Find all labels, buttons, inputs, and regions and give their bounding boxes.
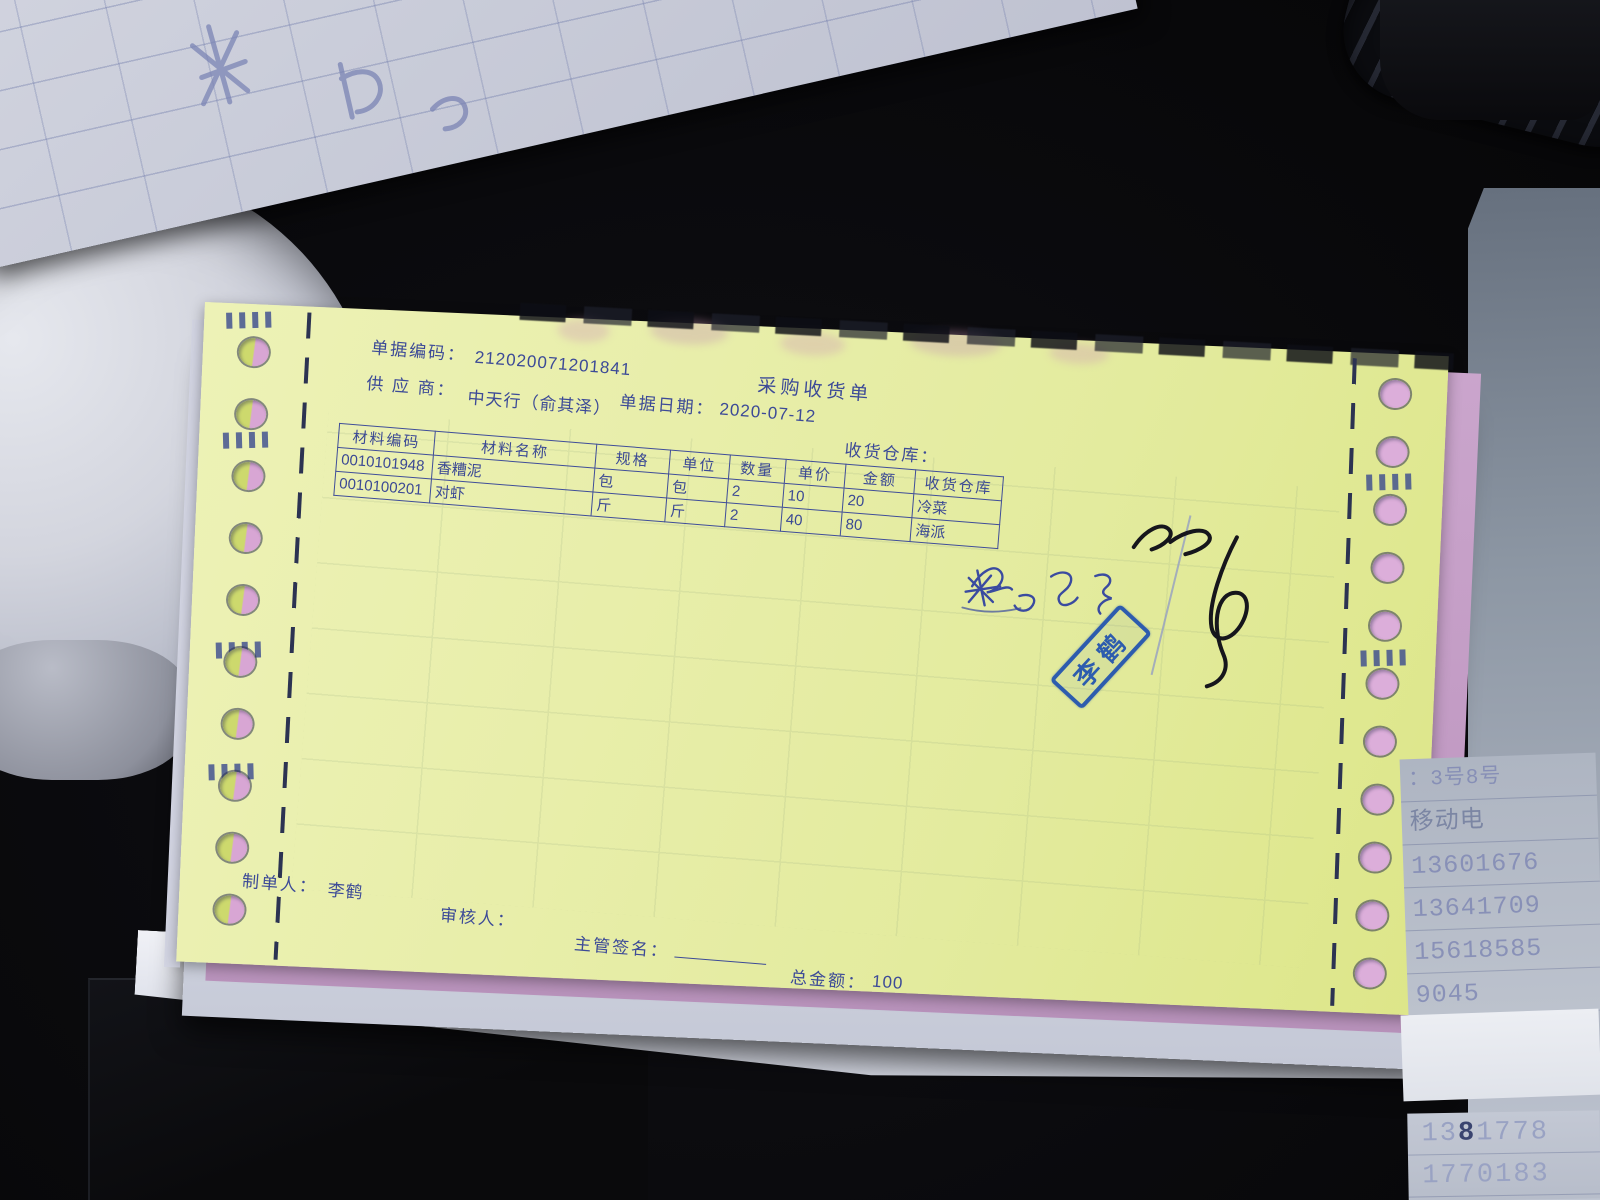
number-digit: 7: [1494, 1118, 1513, 1148]
printed-form-content: 单据编码： 212020071201841 采购收货单 单据日期： 2020-0…: [154, 300, 1448, 1058]
number-digit: 1: [1495, 1160, 1514, 1190]
number-digit: 8: [1513, 1160, 1532, 1190]
table-cell: 80: [840, 512, 912, 542]
table-cell: 斤: [591, 492, 667, 522]
form-title: 采购收货单: [757, 370, 874, 406]
number-digit: 1: [1422, 1161, 1441, 1191]
number-digit: 3: [1440, 1119, 1459, 1149]
signature-line: [674, 944, 767, 965]
phone-strip-row: 13641709: [1404, 882, 1600, 932]
number-digit: 7: [1440, 1161, 1459, 1191]
phone-number-strip: ：3号8号移动电1360167613641709156185859045: [1400, 753, 1600, 1018]
printer-body-shadow: [1380, 0, 1600, 120]
number-digit: 7: [1512, 1118, 1531, 1148]
number-digit: 8: [1458, 1118, 1477, 1148]
preparer-label: 制单人：: [241, 867, 319, 898]
bottom-number-strip: 1381778 1770183: [1407, 1110, 1600, 1200]
total-label: 总金额：: [789, 963, 867, 994]
desk-photo-scene: 单据编码： 212020071201841 采购收货单 单据日期： 2020-0…: [0, 0, 1600, 1200]
table-cell: 40: [780, 507, 842, 536]
supplier-label: 供 应 商：: [366, 369, 457, 401]
number-digit: 1: [1476, 1118, 1495, 1148]
doc-date-label: 单据日期：: [619, 387, 716, 420]
continuous-form-paper-stack: 单据编码： 212020071201841 采购收货单 单据日期： 2020-0…: [176, 302, 1449, 1016]
number-digit: 1: [1421, 1119, 1440, 1149]
doc-code-label: 单据编码：: [370, 333, 467, 366]
phone-strip-row: ：3号8号: [1400, 753, 1597, 803]
doc-code-value: 212020071201841: [474, 348, 632, 381]
supplier-value: 中天行（俞其泽）: [467, 383, 613, 419]
black-signature: [1105, 502, 1301, 726]
phone-strip-row: 15618585: [1406, 925, 1600, 975]
white-roll-base: [0, 640, 190, 780]
reviewer-label: 审核人：: [439, 901, 517, 932]
table-cell: 2: [725, 503, 783, 531]
warehouse-label: 收货仓库：: [844, 436, 941, 469]
phone-strip-row: 13601676: [1403, 839, 1600, 889]
purchase-receipt-form: 单据编码： 212020071201841 采购收货单 单据日期： 2020-0…: [176, 302, 1449, 1016]
number-row: 1381778: [1407, 1110, 1600, 1155]
preparer-value: 李鹤: [327, 876, 365, 904]
total-value: 100: [871, 971, 904, 993]
number-digit: 7: [1458, 1160, 1477, 1190]
phone-strip-row: 移动电: [1401, 796, 1598, 846]
number-digit: 8: [1531, 1117, 1550, 1147]
number-row: 1770183: [1408, 1152, 1600, 1197]
table-cell: 斤: [665, 498, 727, 527]
number-digit: 0: [1477, 1160, 1496, 1190]
number-digit: 3: [1531, 1159, 1550, 1189]
doc-date-value: 2020-07-12: [719, 399, 817, 427]
supervisor-sign-label: 主管签名：: [573, 929, 767, 969]
blank-white-strip: [1401, 1009, 1600, 1102]
